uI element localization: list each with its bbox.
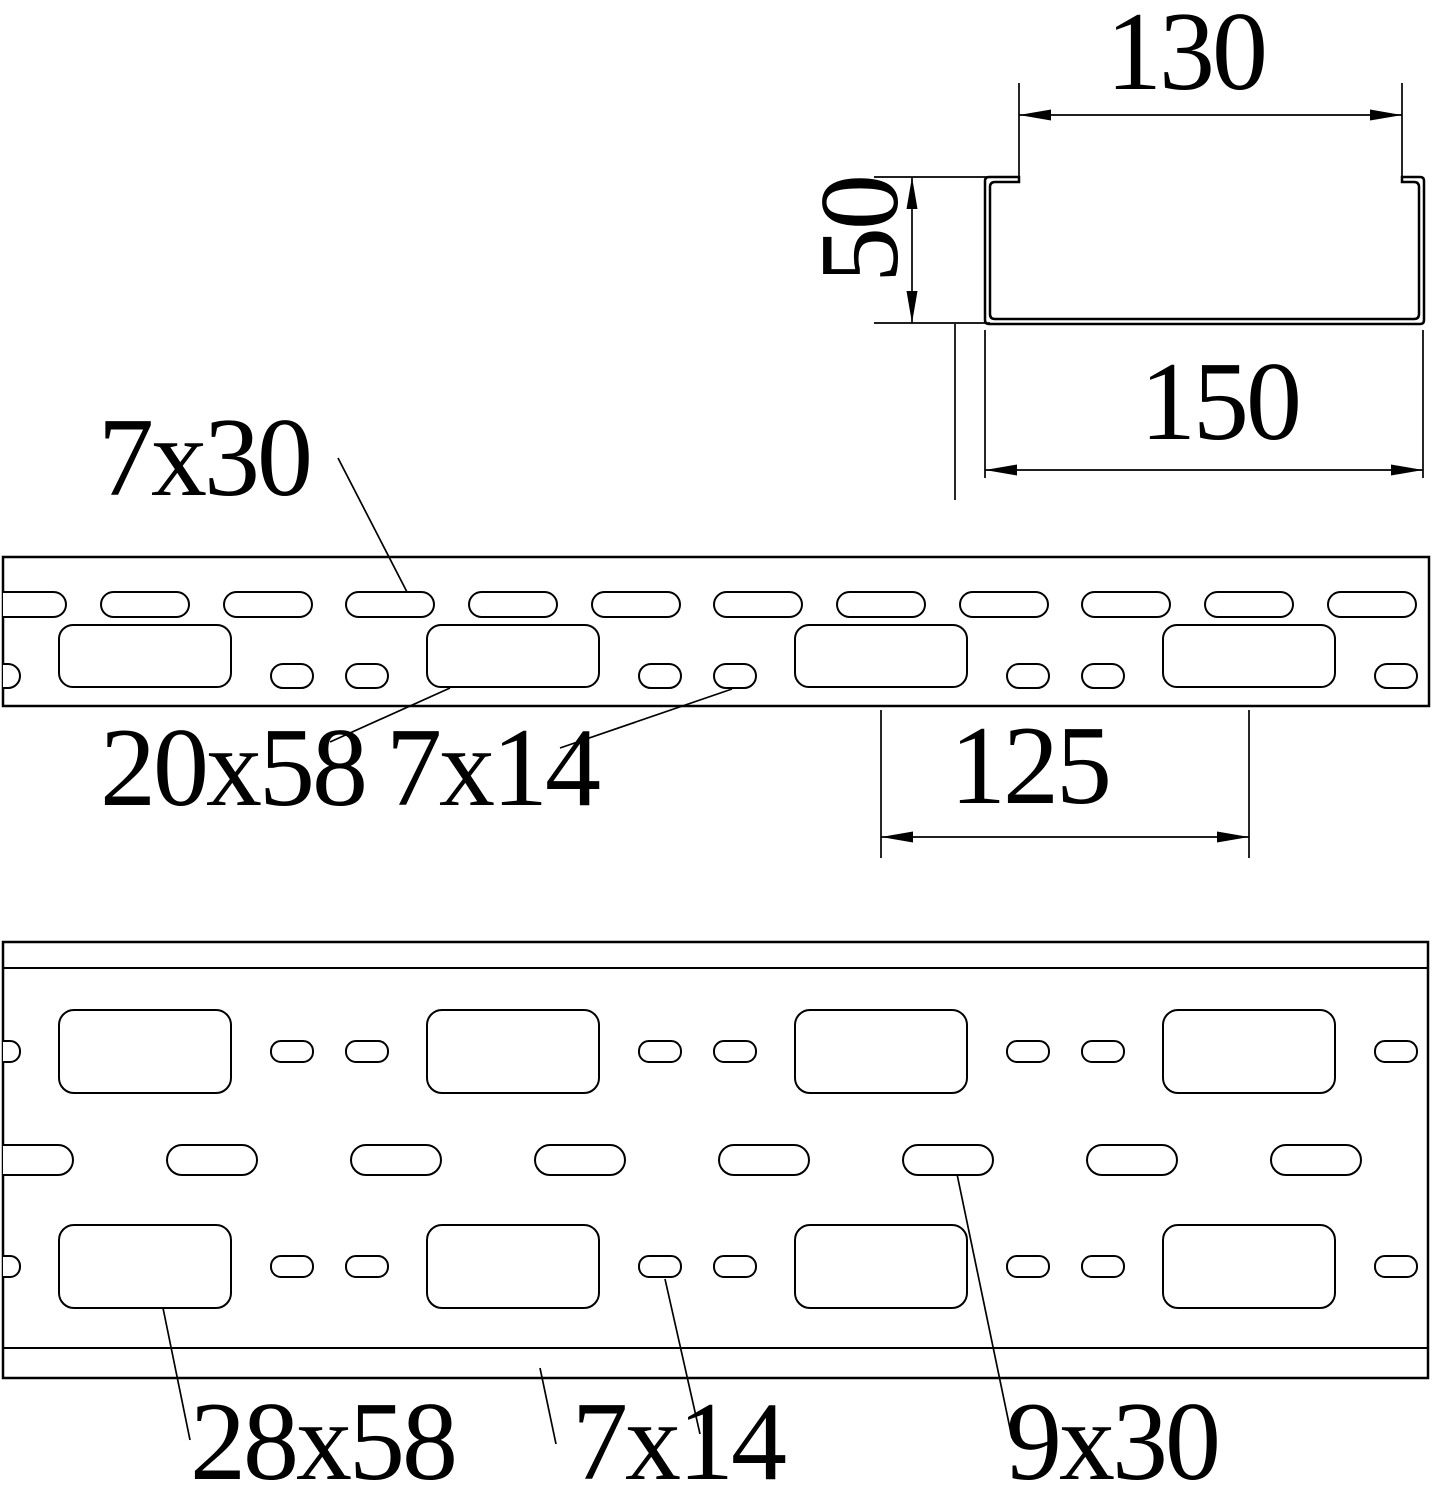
slot-7x14 — [639, 1041, 681, 1062]
dimension-arrowhead — [1217, 832, 1249, 843]
slot-20x58-label: 20x58 — [100, 712, 365, 824]
slot-9x30-label: 9x30 — [1006, 1386, 1218, 1498]
slot-7x14 — [346, 1041, 388, 1062]
slot-7x30 — [1082, 592, 1170, 617]
slot-7x30 — [837, 592, 925, 617]
slot-28x58 — [59, 1010, 231, 1093]
slot-7x30 — [960, 592, 1048, 617]
slot-7x30 — [469, 592, 557, 617]
slot-20x58 — [795, 625, 967, 687]
dimension-arrowhead — [1019, 110, 1051, 121]
slot-7x14 — [271, 664, 313, 688]
slot-7x14 — [0, 1256, 20, 1277]
slot-28x58 — [795, 1010, 967, 1093]
pitch-125-label: 125 — [950, 710, 1109, 822]
slot-7x30-label: 7x30 — [98, 402, 310, 514]
slot-9x30 — [167, 1145, 257, 1175]
slot-9x30 — [351, 1145, 441, 1175]
slot-20x58 — [1163, 625, 1335, 687]
slot-7x14 — [271, 1256, 313, 1277]
slot-9x30 — [535, 1145, 625, 1175]
slot-7x14 — [0, 1041, 20, 1062]
slot-7x14 — [1007, 1041, 1049, 1062]
slot-7x14 — [1082, 664, 1124, 688]
slot-28x58 — [1163, 1225, 1335, 1308]
slot-7x30 — [1205, 592, 1293, 617]
slot-7x14 — [1007, 664, 1049, 688]
slot-28x58-label: 28x58 — [190, 1386, 455, 1498]
slot-9x30 — [1271, 1145, 1361, 1175]
slot-7x30 — [224, 592, 312, 617]
slot-7x14 — [346, 664, 388, 688]
slot-7x14 — [714, 1041, 756, 1062]
slot-7x14 — [1375, 1041, 1417, 1062]
dimension-arrowhead — [1370, 110, 1402, 121]
slot-7x14 — [271, 1041, 313, 1062]
slot-28x58 — [795, 1225, 967, 1308]
slot-9x30 — [0, 1145, 73, 1175]
slot-7x14 — [0, 664, 20, 688]
slot-7x30 — [101, 592, 189, 617]
slot-7x30 — [592, 592, 680, 617]
slot-7x30 — [346, 592, 434, 617]
side-view-strip — [0, 557, 1429, 706]
slot-7x14 — [714, 1256, 756, 1277]
dim-130-label: 130 — [1106, 0, 1265, 108]
leader-line — [540, 1368, 556, 1444]
slot-7x14 — [1007, 1256, 1049, 1277]
slot-7x14-bottom-label: 7x14 — [572, 1386, 784, 1498]
slot-20x58 — [59, 625, 231, 687]
slot-7x14 — [1375, 664, 1417, 688]
slot-28x58 — [1163, 1010, 1335, 1093]
dim-50-label: 50 — [804, 158, 916, 302]
slot-7x14 — [639, 664, 681, 688]
slot-28x58 — [427, 1225, 599, 1308]
slot-9x30 — [903, 1145, 993, 1175]
slot-7x14 — [1082, 1256, 1124, 1277]
dimension-arrowhead — [881, 832, 913, 843]
slot-20x58 — [427, 625, 599, 687]
slot-7x14-side-label: 7x14 — [386, 712, 598, 824]
slot-7x14 — [1082, 1041, 1124, 1062]
drawing-canvas: 130 50 150 7x30 20x58 7x14 125 28x58 7x1… — [0, 0, 1434, 1500]
dimension-arrowhead — [1391, 465, 1423, 476]
cross-section-profile — [985, 177, 1424, 324]
channel-section-outline — [985, 177, 1424, 324]
dimension-arrowhead — [985, 465, 1017, 476]
slot-7x14 — [639, 1256, 681, 1277]
plan-view-strip — [0, 942, 1428, 1378]
slot-28x58 — [59, 1225, 231, 1308]
slot-7x14 — [346, 1256, 388, 1277]
slot-28x58 — [427, 1010, 599, 1093]
slot-7x30 — [714, 592, 802, 617]
dim-150-label: 150 — [1140, 346, 1299, 458]
slot-7x30 — [0, 592, 66, 617]
slot-9x30 — [1087, 1145, 1177, 1175]
slot-7x30 — [1328, 592, 1416, 617]
slot-9x30 — [719, 1145, 809, 1175]
slot-7x14 — [1375, 1256, 1417, 1277]
slot-7x14 — [714, 664, 756, 688]
